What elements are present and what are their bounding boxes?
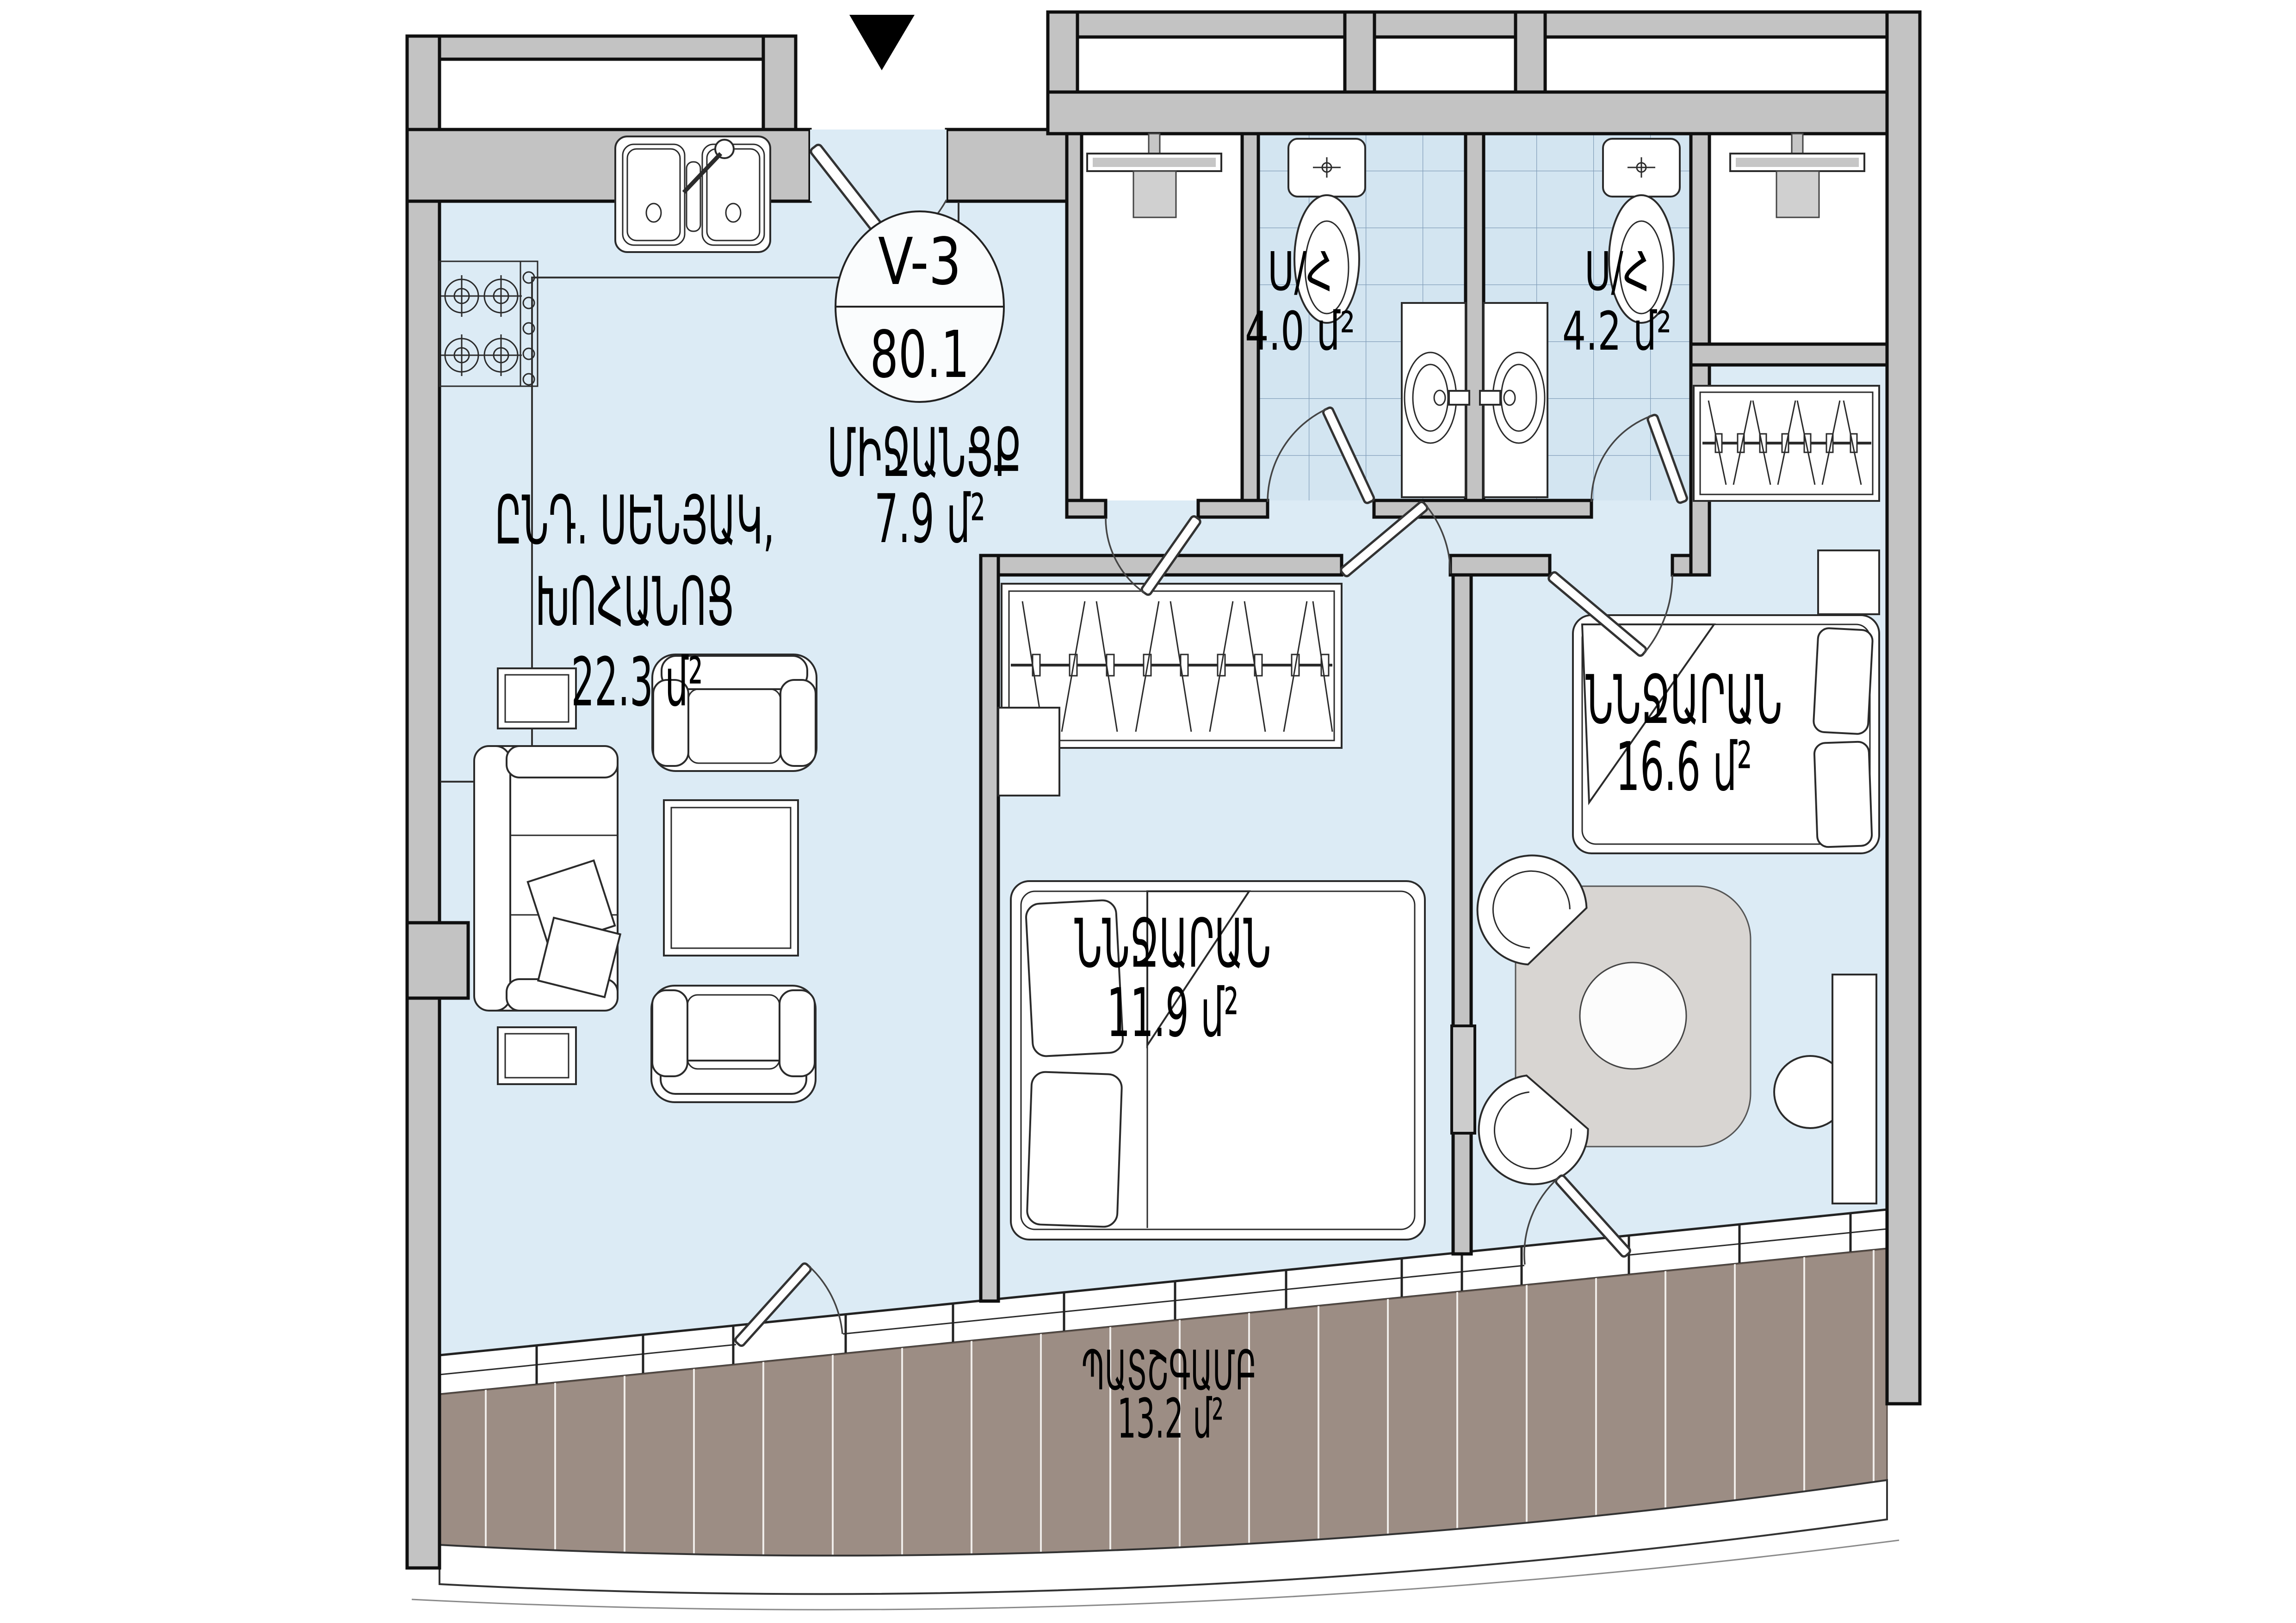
unit-code: V-3 bbox=[878, 224, 961, 300]
wall-bedroom-small-west bbox=[981, 555, 998, 1301]
wall-top-main-right bbox=[1048, 92, 1920, 134]
washbasin-icon-right bbox=[1480, 303, 1547, 497]
side-table-top bbox=[498, 668, 576, 728]
bedroom-large-area: 16.6 մ² bbox=[1616, 728, 1752, 806]
wall-right bbox=[1887, 12, 1920, 1404]
console-large-bedroom bbox=[1832, 975, 1876, 1203]
wall-bedroom-large-top-2 bbox=[1672, 555, 1691, 575]
living-kitchen-label-1: ԸՆԴ. ՍԵՆՅԱԿ, bbox=[495, 481, 775, 560]
wall-between-bedrooms bbox=[1453, 575, 1471, 1254]
wall-top-main-right-of-entry bbox=[947, 130, 1067, 201]
unit-badge: V-3 80.1 bbox=[835, 211, 1004, 402]
coffee-table bbox=[664, 800, 798, 956]
entrance-marker-icon bbox=[849, 15, 915, 70]
wall-bath-bottom-1 bbox=[1067, 500, 1106, 517]
wall-top-left-outer bbox=[407, 36, 796, 59]
tv-icon bbox=[1452, 1026, 1475, 1133]
wall-bath-bottom-2 bbox=[1198, 500, 1268, 517]
nightstand-large-bedroom bbox=[1818, 550, 1879, 614]
balcony-area: 13.2 մ² bbox=[1117, 1387, 1224, 1450]
bedroom-small-area: 11.9 մ² bbox=[1107, 974, 1239, 1052]
kitchen-sink-icon bbox=[615, 136, 770, 252]
sofa-icon bbox=[474, 746, 620, 1011]
bathroom-right-label: Ս/Հ bbox=[1584, 241, 1649, 303]
wall-top-right-outer bbox=[1048, 12, 1920, 37]
wall-closet-right-bottom bbox=[1691, 344, 1887, 365]
wall-left-pier bbox=[407, 923, 468, 998]
bedroom-large-label: ՆՆՋԱՐԱՆ bbox=[1586, 661, 1782, 739]
bathroom-right-area: 4.2 մ² bbox=[1562, 301, 1671, 363]
wardrobe-icon-large-bedroom bbox=[1694, 386, 1879, 501]
hall-area: 7.9 մ² bbox=[874, 480, 985, 558]
bathroom-left-area: 4.0 մ² bbox=[1245, 301, 1355, 363]
wall-top-left-connector bbox=[763, 36, 796, 130]
wall-left bbox=[407, 36, 439, 1568]
living-kitchen-area: 22.3 մ² bbox=[571, 643, 703, 722]
armchair-icon-bottom bbox=[651, 986, 816, 1102]
floor-plan: V-3 80.1 ՄԻՋԱՆՑՔ 7.9 մ² ԸՆԴ. ՍԵՆՅԱԿ, ԽՈՀ… bbox=[0, 0, 2296, 1623]
wall-bath-divider bbox=[1466, 134, 1484, 500]
bedroom-small-shelf bbox=[998, 708, 1059, 796]
unit-total-area: 80.1 bbox=[870, 317, 970, 393]
side-table-bottom bbox=[498, 1027, 576, 1084]
bathroom-left-label: Ս/Հ bbox=[1268, 241, 1332, 303]
wall-bedroom-large-top-1 bbox=[1450, 555, 1550, 575]
bedroom-small-label: ՆՆՋԱՐԱՆ bbox=[1075, 905, 1271, 983]
wall-closet-left-west bbox=[1067, 134, 1082, 500]
living-kitchen-label-2: ԽՈՀԱՆՈՑ bbox=[535, 563, 734, 641]
washbasin-icon-left bbox=[1402, 303, 1469, 497]
